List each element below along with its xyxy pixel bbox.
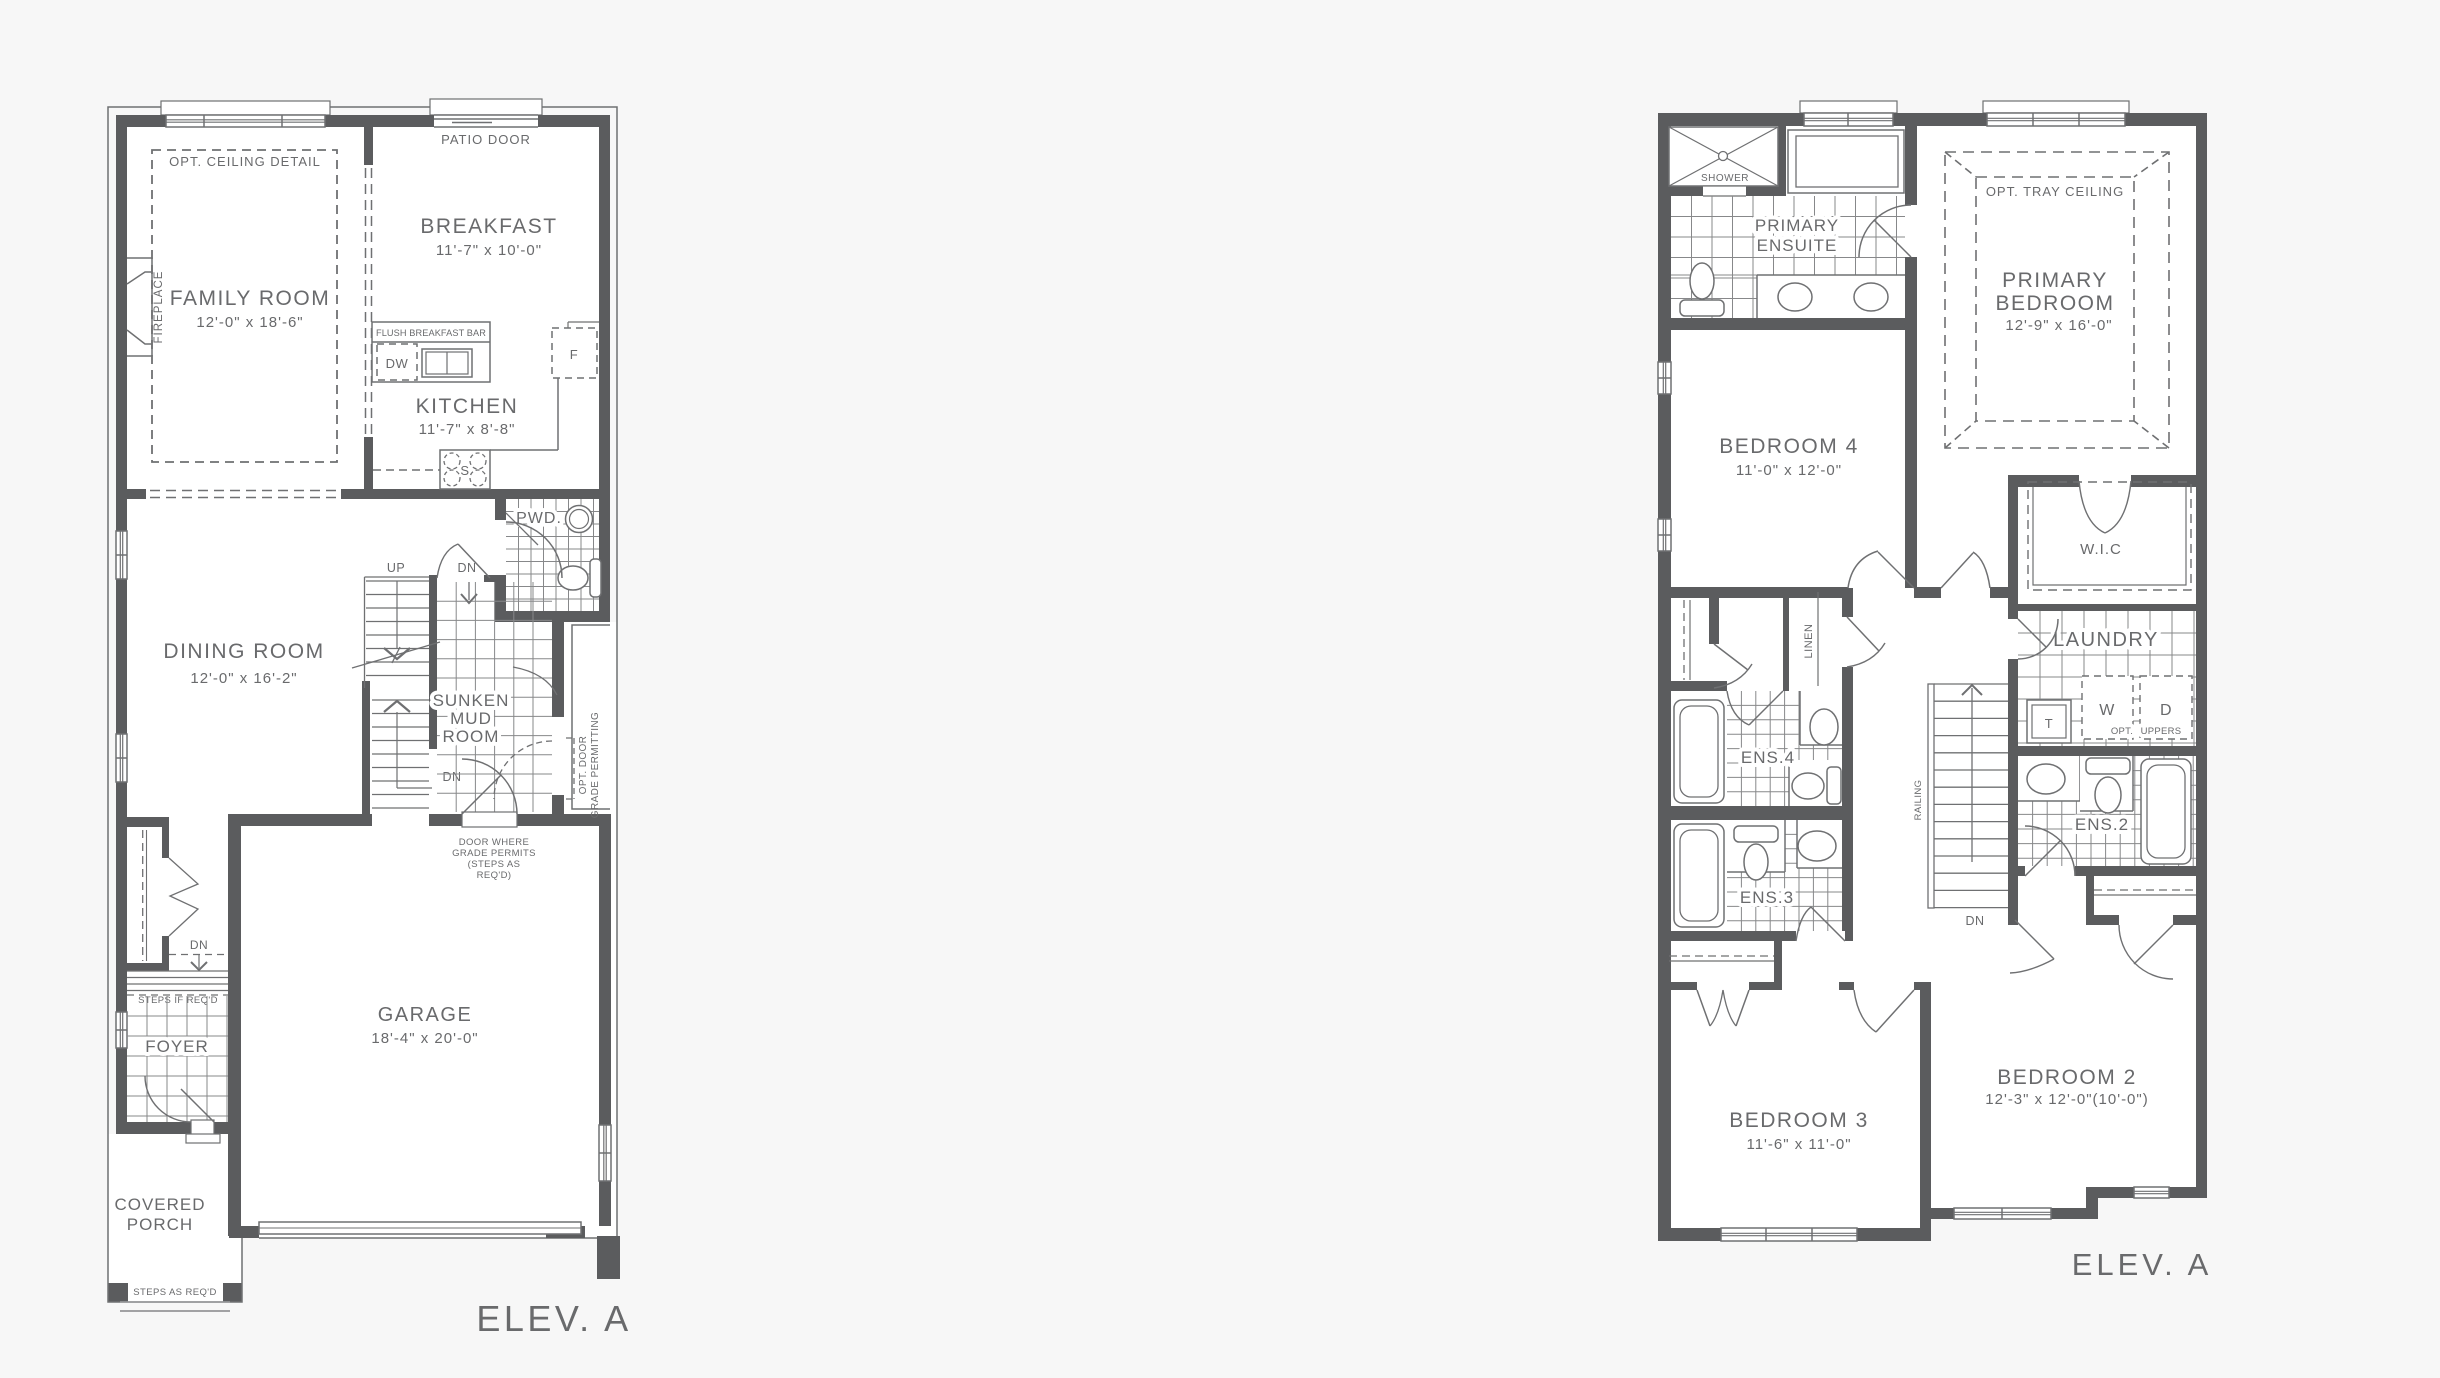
svg-text:S: S bbox=[460, 463, 469, 478]
svg-text:BEDROOM 4: BEDROOM 4 bbox=[1719, 435, 1859, 458]
svg-text:W.I.C: W.I.C bbox=[2080, 541, 2122, 558]
svg-text:11'-7" x 8'-8": 11'-7" x 8'-8" bbox=[419, 421, 516, 438]
svg-text:DN: DN bbox=[457, 561, 476, 575]
svg-text:12'-9" x 16'-0": 12'-9" x 16'-0" bbox=[2005, 317, 2112, 334]
svg-text:UP: UP bbox=[387, 561, 405, 575]
svg-text:ENS.4: ENS.4 bbox=[1741, 748, 1795, 767]
svg-text:OPT. DOOR: OPT. DOOR bbox=[578, 736, 589, 795]
svg-text:D: D bbox=[2160, 702, 2172, 719]
svg-text:GRADE PERMITS: GRADE PERMITS bbox=[452, 848, 536, 859]
svg-text:BEDROOM 2: BEDROOM 2 bbox=[1997, 1066, 2137, 1089]
svg-text:LAUNDRY: LAUNDRY bbox=[2053, 629, 2159, 651]
svg-text:FLUSH BREAKFAST BAR: FLUSH BREAKFAST BAR bbox=[376, 328, 486, 338]
svg-text:DOOR WHERE: DOOR WHERE bbox=[459, 837, 530, 848]
svg-text:DW: DW bbox=[386, 356, 409, 371]
svg-text:FAMILY ROOM: FAMILY ROOM bbox=[170, 287, 330, 310]
svg-text:KITCHEN: KITCHEN bbox=[416, 395, 519, 418]
svg-text:FOYER: FOYER bbox=[145, 1037, 209, 1056]
svg-text:ELEV. A: ELEV. A bbox=[2072, 1247, 2213, 1282]
svg-text:PRIMARY: PRIMARY bbox=[2002, 269, 2108, 292]
svg-text:SHOWER: SHOWER bbox=[1701, 173, 1749, 184]
svg-text:W: W bbox=[2099, 702, 2115, 719]
svg-text:DN: DN bbox=[442, 770, 461, 784]
svg-text:PATIO DOOR: PATIO DOOR bbox=[441, 132, 531, 147]
svg-text:BREAKFAST: BREAKFAST bbox=[420, 215, 557, 238]
svg-text:BEDROOM: BEDROOM bbox=[1995, 292, 2114, 315]
svg-text:DN: DN bbox=[190, 938, 208, 952]
svg-text:UPPERS: UPPERS bbox=[2141, 726, 2182, 737]
svg-text:12'-3" x 12'-0"(10'-0"): 12'-3" x 12'-0"(10'-0") bbox=[1985, 1091, 2148, 1108]
svg-text:F: F bbox=[570, 347, 578, 362]
svg-text:11'-0" x 12'-0": 11'-0" x 12'-0" bbox=[1736, 462, 1842, 479]
svg-text:DINING ROOM: DINING ROOM bbox=[163, 640, 324, 663]
svg-text:OPT.: OPT. bbox=[2111, 726, 2133, 737]
svg-text:RAILING: RAILING bbox=[1913, 780, 1924, 821]
svg-text:PORCH: PORCH bbox=[127, 1215, 193, 1234]
svg-text:12'-0" x 18'-6": 12'-0" x 18'-6" bbox=[196, 314, 303, 331]
svg-text:BEDROOM 3: BEDROOM 3 bbox=[1729, 1109, 1869, 1132]
svg-text:OPT. CEILING DETAIL: OPT. CEILING DETAIL bbox=[169, 154, 321, 169]
svg-text:REQ'D): REQ'D) bbox=[477, 870, 512, 881]
svg-text:11'-6" x 11'-0": 11'-6" x 11'-0" bbox=[1746, 1136, 1851, 1153]
svg-text:T: T bbox=[2045, 716, 2053, 731]
svg-text:ENS.2: ENS.2 bbox=[2075, 815, 2129, 834]
svg-text:FIREPLACE: FIREPLACE bbox=[153, 271, 165, 344]
svg-text:SUNKEN: SUNKEN bbox=[433, 691, 510, 710]
svg-text:18'-4" x 20'-0": 18'-4" x 20'-0" bbox=[371, 1030, 478, 1047]
svg-text:STEPS IF REQ'D: STEPS IF REQ'D bbox=[138, 995, 218, 1006]
svg-text:LINEN: LINEN bbox=[1803, 624, 1815, 659]
svg-text:DN: DN bbox=[1965, 914, 1984, 928]
svg-text:COVERED: COVERED bbox=[114, 1195, 205, 1214]
svg-text:12'-0" x 16'-2": 12'-0" x 16'-2" bbox=[190, 670, 297, 687]
svg-text:MUD: MUD bbox=[450, 709, 492, 728]
svg-text:(STEPS AS: (STEPS AS bbox=[468, 859, 521, 870]
svg-text:GARAGE: GARAGE bbox=[378, 1004, 473, 1026]
svg-text:GRADE PERMITTING: GRADE PERMITTING bbox=[590, 712, 601, 818]
svg-text:ENS.3: ENS.3 bbox=[1740, 888, 1794, 907]
svg-text:11'-7" x 10'-0": 11'-7" x 10'-0" bbox=[436, 242, 542, 259]
svg-text:STEPS AS REQ'D: STEPS AS REQ'D bbox=[133, 1287, 216, 1298]
svg-text:OPT. TRAY CEILING: OPT. TRAY CEILING bbox=[1986, 184, 2124, 199]
svg-text:ELEV. A: ELEV. A bbox=[476, 1298, 631, 1339]
svg-text:ROOM: ROOM bbox=[443, 727, 500, 746]
svg-text:ENSUITE: ENSUITE bbox=[1757, 236, 1838, 255]
svg-text:PRIMARY: PRIMARY bbox=[1755, 216, 1839, 235]
